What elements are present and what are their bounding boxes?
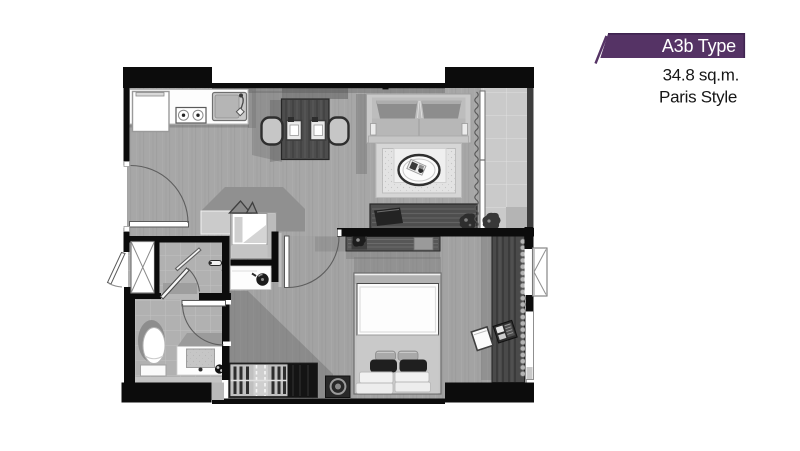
svg-text:34.8 sq.m.: 34.8 sq.m. [663, 66, 739, 85]
svg-text:Paris Style: Paris Style [659, 88, 737, 107]
svg-text:A3b Type: A3b Type [662, 36, 736, 56]
